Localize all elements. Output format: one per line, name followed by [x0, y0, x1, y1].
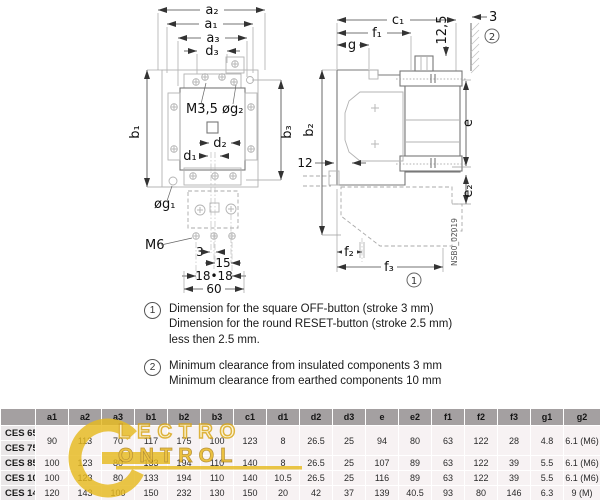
- column-header: b3: [201, 409, 234, 426]
- column-header: c1: [234, 409, 267, 426]
- column-header: e: [366, 409, 399, 426]
- table-cell: 123: [234, 426, 267, 456]
- table-cell: 8: [267, 456, 300, 471]
- table-cell: 6.1 (M6): [564, 456, 600, 471]
- table-cell: 194: [168, 456, 201, 471]
- table-cell: 26.5: [300, 426, 333, 456]
- dim-label-3: 3: [196, 245, 204, 259]
- table-cell: 120: [36, 486, 69, 501]
- table-cell: 150: [135, 486, 168, 501]
- table-cell: 133: [135, 456, 168, 471]
- table-cell: 143: [69, 486, 102, 501]
- table-cell: 80: [102, 456, 135, 471]
- table-cell: 175: [168, 426, 201, 456]
- column-header: f1: [432, 409, 465, 426]
- footnote-line: Dimension for the square OFF-button (str…: [169, 302, 452, 317]
- dim-label-f3: f₃: [384, 260, 394, 275]
- front-view-drawing: a₂ a₁ a₃ d₃ b₁ b₃: [128, 2, 295, 296]
- dimension-table-body: CES 659011370117175100123826.52594806312…: [1, 426, 600, 501]
- table-cell: 150: [234, 486, 267, 501]
- table-cell: 122: [465, 456, 498, 471]
- table-cell: 139: [366, 486, 399, 501]
- dim-label-12: 12: [297, 156, 312, 170]
- column-header: b2: [168, 409, 201, 426]
- table-cell: 122: [465, 426, 498, 456]
- table-cell: 133: [135, 471, 168, 486]
- row-label: CES 75: [1, 441, 36, 456]
- table-cell: 113: [69, 426, 102, 456]
- label-m35-og2: M3,5 øg₂: [186, 102, 243, 117]
- table-cell: 116: [366, 471, 399, 486]
- column-header: b1: [135, 409, 168, 426]
- dim-label-a2: a₂: [205, 3, 218, 18]
- dim-label-e2: e₂: [461, 184, 476, 197]
- table-cell: 20: [267, 486, 300, 501]
- dim-label-12-5: 12,5: [435, 16, 450, 45]
- table-cell: 110: [201, 456, 234, 471]
- svg-text:1: 1: [411, 276, 417, 287]
- table-cell: 6.1 (M6): [564, 426, 600, 456]
- dim-label-b2: b₂: [302, 123, 317, 136]
- footnote-line: Minimum clearance from insulated compone…: [169, 359, 442, 374]
- column-header: f2: [465, 409, 498, 426]
- table-row: CES 8510012380133194110140826.5251078963…: [1, 456, 600, 471]
- table-cell: 26.5: [300, 471, 333, 486]
- table-cell: 107: [366, 456, 399, 471]
- column-header: d1: [267, 409, 300, 426]
- dim-label-d2: d₂: [213, 136, 226, 151]
- dim-label-a1: a₁: [204, 17, 217, 32]
- table-cell: 122: [465, 471, 498, 486]
- dim-label-d1: d₁: [183, 149, 196, 164]
- column-header: f3: [498, 409, 531, 426]
- row-label: CES 85: [1, 456, 36, 471]
- footnote-line: Minimum clearance from earthed component…: [169, 374, 442, 389]
- table-cell: 80: [399, 426, 432, 456]
- technical-drawing: a₂ a₁ a₃ d₃ b₁ b₃: [0, 0, 600, 300]
- dim-label-60: 60: [206, 282, 221, 296]
- table-cell: 123: [69, 471, 102, 486]
- table-cell: 28: [498, 426, 531, 456]
- row-label: CES 105: [1, 471, 36, 486]
- table-cell: 194: [168, 471, 201, 486]
- table-row: CES 14012014310015023213015020423713940.…: [1, 486, 600, 501]
- table-cell: 94: [366, 426, 399, 456]
- table-cell: 100: [36, 456, 69, 471]
- dim-label-b1: b₁: [128, 125, 143, 138]
- table-cell: 6.3: [531, 486, 564, 501]
- table-cell: 25: [333, 456, 366, 471]
- dim-label-e: e: [461, 119, 476, 127]
- table-cell: 89: [399, 471, 432, 486]
- table-cell: 5.5: [531, 471, 564, 486]
- column-header: g2: [564, 409, 600, 426]
- column-header: e2: [399, 409, 432, 426]
- table-cell: 39: [498, 471, 531, 486]
- table-cell: 70: [102, 426, 135, 456]
- table-row: CES 659011370117175100123826.52594806312…: [1, 426, 600, 441]
- dim-label-d3: d₃: [205, 44, 218, 59]
- column-header: d3: [333, 409, 366, 426]
- dim-label-f1: f₁: [372, 26, 382, 41]
- footnote-2-text: Minimum clearance from insulated compone…: [169, 359, 442, 390]
- table-cell: 4.8: [531, 426, 564, 456]
- side-view-drawing: c₁ f₁ g 12,5 3 2: [297, 10, 499, 287]
- row-label: CES 140: [1, 486, 36, 501]
- table-cell: 100: [36, 471, 69, 486]
- table-cell: 6.1 (M6): [564, 471, 600, 486]
- table-cell: 117: [135, 426, 168, 456]
- table-cell: 40.5: [399, 486, 432, 501]
- footnote-1-number: 1: [144, 302, 161, 319]
- table-cell: 25: [333, 471, 366, 486]
- table-cell: 63: [432, 426, 465, 456]
- row-label: CES 65: [1, 426, 36, 441]
- table-cell: 42: [300, 486, 333, 501]
- footnotes: 1 Dimension for the square OFF-button (s…: [144, 302, 589, 400]
- table-cell: 93: [432, 486, 465, 501]
- table-cell: 37: [333, 486, 366, 501]
- dimension-table: a1a2a3b1b2b3c1d1d2d3ee2f1f2f3g1g2 CES 65…: [0, 408, 600, 501]
- footnote-2-number: 2: [144, 359, 161, 376]
- datasheet-page: a₂ a₁ a₃ d₃ b₁ b₃: [0, 0, 600, 501]
- table-cell: 8: [267, 426, 300, 456]
- table-cell: 130: [201, 486, 234, 501]
- svg-text:2: 2: [489, 32, 495, 43]
- table-cell: 39: [498, 456, 531, 471]
- label-m6: M6: [145, 238, 165, 253]
- table-cell: 90: [36, 426, 69, 456]
- table-cell: 25: [333, 426, 366, 456]
- table-cell: 100: [201, 426, 234, 456]
- dim-label-15: 15: [215, 256, 230, 270]
- table-cell: 80: [465, 486, 498, 501]
- table-row: CES 1051001238013319411014010.526.525116…: [1, 471, 600, 486]
- table-cell: 63: [432, 471, 465, 486]
- column-header: g1: [531, 409, 564, 426]
- column-header: d2: [300, 409, 333, 426]
- dim-label-c1: c₁: [392, 13, 404, 28]
- table-cell: 140: [234, 456, 267, 471]
- table-cell: 89: [399, 456, 432, 471]
- dim-label-b3: b₃: [280, 125, 295, 138]
- label-og1: øg₁: [154, 197, 175, 212]
- table-cell: 9 (M): [564, 486, 600, 501]
- table-cell: 80: [102, 471, 135, 486]
- table-cell: 10.5: [267, 471, 300, 486]
- dim-label-f2: f₂: [344, 245, 354, 260]
- dim-label-wall-3: 3: [489, 10, 497, 25]
- dim-label-g: g: [348, 38, 356, 53]
- callout-1: 1: [407, 273, 421, 287]
- table-cell: 100: [102, 486, 135, 501]
- table-cell: 110: [201, 471, 234, 486]
- footnote-line: Dimension for the round RESET-button (st…: [169, 317, 452, 332]
- table-cell: 146: [498, 486, 531, 501]
- dim-label-18-18: 18•18: [195, 269, 233, 283]
- dimension-table-header-row: a1a2a3b1b2b3c1d1d2d3ee2f1f2f3g1g2: [1, 409, 600, 426]
- table-cell: 5.5: [531, 456, 564, 471]
- column-header: a3: [102, 409, 135, 426]
- table-corner-cell: [1, 409, 36, 426]
- table-cell: 140: [234, 471, 267, 486]
- drawing-code: NSB0_02019: [450, 218, 459, 266]
- table-cell: 123: [69, 456, 102, 471]
- column-header: a1: [36, 409, 69, 426]
- table-cell: 26.5: [300, 456, 333, 471]
- footnote-2: 2 Minimum clearance from insulated compo…: [144, 359, 589, 390]
- column-header: a2: [69, 409, 102, 426]
- footnote-1: 1 Dimension for the square OFF-button (s…: [144, 302, 589, 348]
- table-cell: 232: [168, 486, 201, 501]
- footnote-line: less then 2.5 mm.: [169, 333, 452, 348]
- callout-2: 2: [485, 29, 499, 43]
- footnote-1-text: Dimension for the square OFF-button (str…: [169, 302, 452, 348]
- table-cell: 63: [432, 456, 465, 471]
